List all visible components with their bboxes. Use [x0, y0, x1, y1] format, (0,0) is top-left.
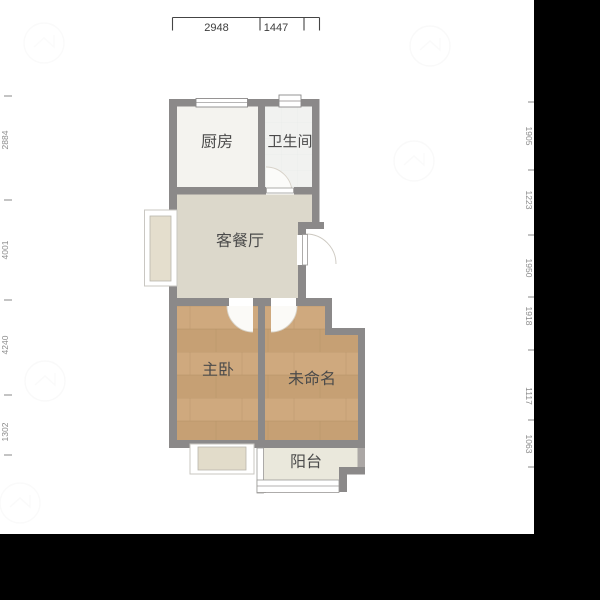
svg-text:2948: 2948 [204, 22, 228, 34]
svg-text:1117: 1117 [524, 387, 534, 405]
svg-text:1905: 1905 [524, 127, 534, 146]
svg-text:1950: 1950 [524, 259, 534, 278]
svg-text:4240: 4240 [0, 335, 10, 354]
svg-text:4001: 4001 [0, 240, 10, 259]
svg-text:1302: 1302 [0, 422, 10, 441]
svg-text:1223: 1223 [524, 191, 534, 210]
svg-text:1918: 1918 [524, 307, 534, 326]
svg-text:2884: 2884 [0, 130, 10, 149]
svg-text:1063: 1063 [524, 435, 534, 454]
svg-text:1447: 1447 [264, 22, 288, 34]
